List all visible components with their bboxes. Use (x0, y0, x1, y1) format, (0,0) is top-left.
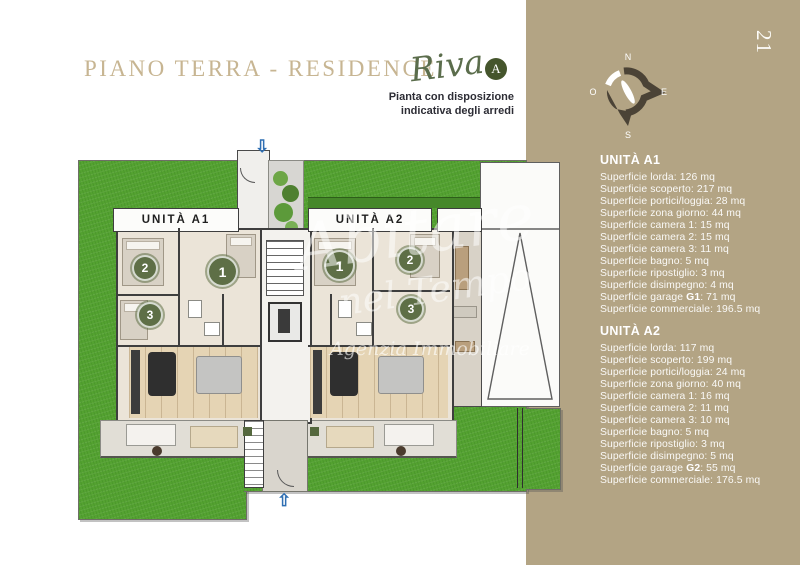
planter-box (310, 427, 319, 436)
area-line: Superficie ripostiglio: 3 mq (600, 439, 800, 451)
bath-fixture (188, 300, 202, 318)
area-line: Superficie scoperto: 217 mq (600, 184, 800, 196)
bush-icon (273, 171, 288, 186)
outdoor-sofa (384, 424, 434, 446)
plan-subtitle-line1: Pianta con disposizione (330, 91, 514, 105)
unit-a1-area-list: Superficie lorda: 126 mqSuperficie scope… (600, 172, 800, 316)
area-line: Superficie garage G2: 55 mq (600, 463, 800, 475)
area-line: Superficie lorda: 126 mq (600, 172, 800, 184)
area-line: Superficie zona giorno: 40 mq (600, 379, 800, 391)
area-line: Superficie scoperto: 199 mq (600, 355, 800, 367)
lawn-right-extension (526, 408, 561, 490)
area-line: Superficie camera 2: 15 mq (600, 232, 800, 244)
wall (222, 294, 224, 346)
wall (178, 228, 180, 346)
area-line: Superficie camera 1: 16 mq (600, 391, 800, 403)
entry-arrow-top-icon: ⇩ (255, 138, 269, 155)
building-badge: A (485, 58, 507, 80)
wall (116, 345, 260, 347)
sofa (196, 356, 242, 394)
area-line: Superficie lorda: 117 mq (600, 343, 800, 355)
brand-script: Riva (408, 42, 486, 90)
room-badge-a1-3: 3 (137, 302, 163, 328)
planter-box (243, 427, 252, 436)
bath-fixture (204, 322, 220, 336)
bath-fixture (356, 322, 372, 336)
sofa (378, 356, 424, 394)
outdoor-sofa (126, 424, 176, 446)
plan-subtitle-line2: indicativa degli arredi (330, 105, 514, 119)
area-line: Superficie camera 3: 10 mq (600, 415, 800, 427)
area-line: Superficie commerciale: 176.5 mq (600, 475, 800, 487)
area-line: Superficie portici/loggia: 24 mq (600, 367, 800, 379)
entry-corridor-top (237, 150, 270, 232)
entry-arrow-bottom-icon: ⇧ (277, 492, 291, 509)
area-line: Superficie bagno: 5 mq (600, 256, 800, 268)
wall (116, 294, 180, 296)
room-badge-a1-2: 2 (132, 255, 158, 281)
dining-table (148, 352, 176, 396)
outdoor-dining-table (326, 426, 374, 448)
area-line: Superficie zona giorno: 44 mq (600, 208, 800, 220)
unit-a2-area-list: Superficie lorda: 117 mqSuperficie scope… (600, 343, 800, 487)
compass-east-label: E (661, 87, 667, 97)
area-line: Superficie bagno: 5 mq (600, 427, 800, 439)
room-badge-a1-1: 1 (207, 256, 238, 287)
compass-west-label: O (589, 87, 596, 97)
outdoor-round-table (396, 446, 406, 456)
outdoor-round-table (152, 446, 162, 456)
page-number: 21 (751, 30, 776, 55)
area-line: Superficie camera 1: 15 mq (600, 220, 800, 232)
outdoor-dining-table (190, 426, 238, 448)
unit-a1-label: UNITÀ A1 (113, 208, 239, 232)
area-line: Superficie garage G1: 71 mq (600, 292, 800, 304)
unit-a2-details-title: UNITÀ A2 (600, 324, 800, 338)
compass-icon: N E S O (588, 44, 668, 144)
area-line: Superficie disimpegno: 4 mq (600, 280, 800, 292)
kitchen-counter (313, 350, 322, 414)
unit-a1-details-title: UNITÀ A1 (600, 153, 800, 167)
kitchen-counter (131, 350, 140, 414)
brochure-page: 21 N E S O UNITÀ A1 Superficie lorda: 12… (0, 0, 800, 565)
plan-subtitle: Pianta con disposizione indicativa degli… (330, 91, 514, 118)
compass-south-label: S (625, 130, 631, 140)
page-title: PIANO TERRA - RESIDENCE (84, 56, 437, 82)
unit-a1-details: UNITÀ A1 Superficie lorda: 126 mqSuperfi… (600, 153, 800, 316)
compass-north-label: N (625, 52, 632, 62)
area-line: Superficie portici/loggia: 28 mq (600, 196, 800, 208)
area-line: Superficie ripostiglio: 3 mq (600, 268, 800, 280)
area-line: Superficie camera 2: 11 mq (600, 403, 800, 415)
bush-icon (282, 185, 299, 202)
area-line: Superficie camera 3: 11 mq (600, 244, 800, 256)
watermark-agency: Agenzia Immobiliare (330, 338, 530, 360)
unit-a2-details: UNITÀ A2 Superficie lorda: 117 mqSuperfi… (600, 324, 800, 487)
elevator-cab (278, 309, 290, 333)
area-line: Superficie disimpegno: 5 mq (600, 451, 800, 463)
elevator (268, 302, 302, 342)
fence-line (517, 408, 523, 488)
area-line: Superficie commerciale: 196.5 mq (600, 304, 800, 316)
